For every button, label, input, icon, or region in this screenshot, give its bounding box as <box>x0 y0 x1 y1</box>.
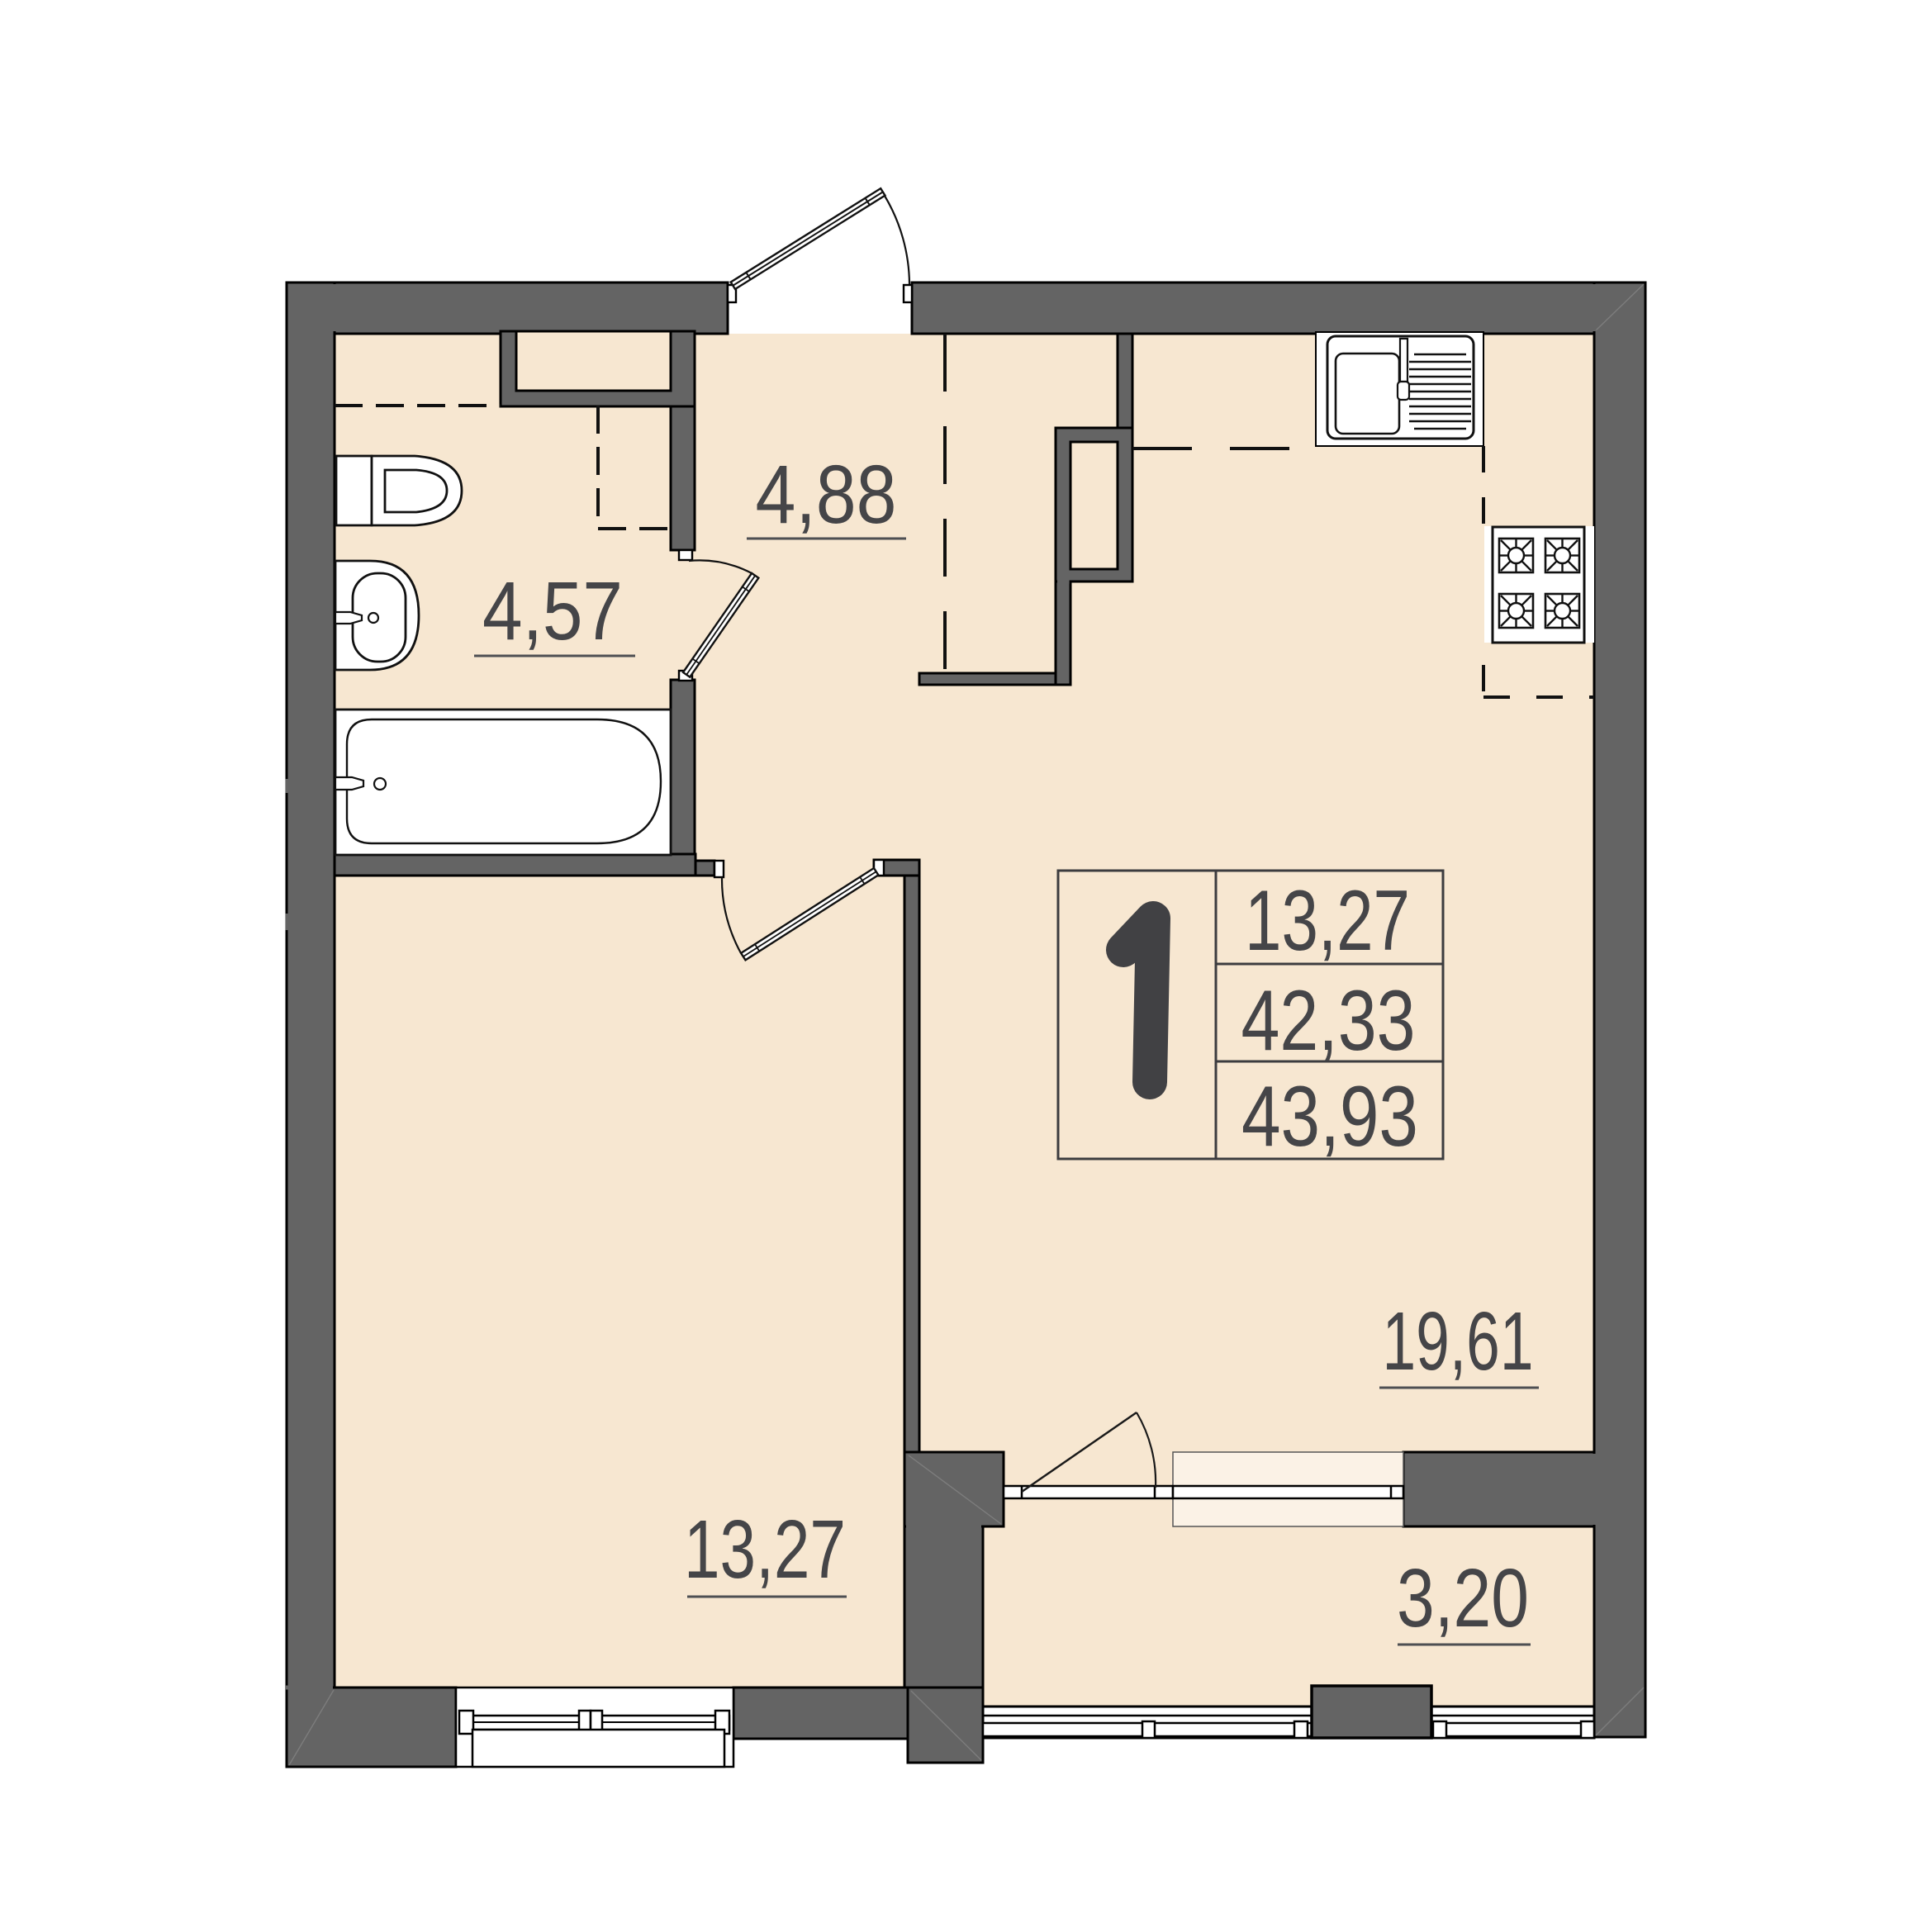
svg-text:43,93: 43,93 <box>1241 1069 1418 1165</box>
svg-text:3,20: 3,20 <box>1397 1552 1529 1645</box>
svg-text:4,57: 4,57 <box>482 565 623 657</box>
svg-text:13,27: 13,27 <box>1245 873 1410 969</box>
svg-text:19,61: 19,61 <box>1383 1295 1534 1388</box>
svg-text:4,88: 4,88 <box>756 449 897 541</box>
svg-text:42,33: 42,33 <box>1241 973 1416 1069</box>
svg-text:13,27: 13,27 <box>684 1503 846 1596</box>
